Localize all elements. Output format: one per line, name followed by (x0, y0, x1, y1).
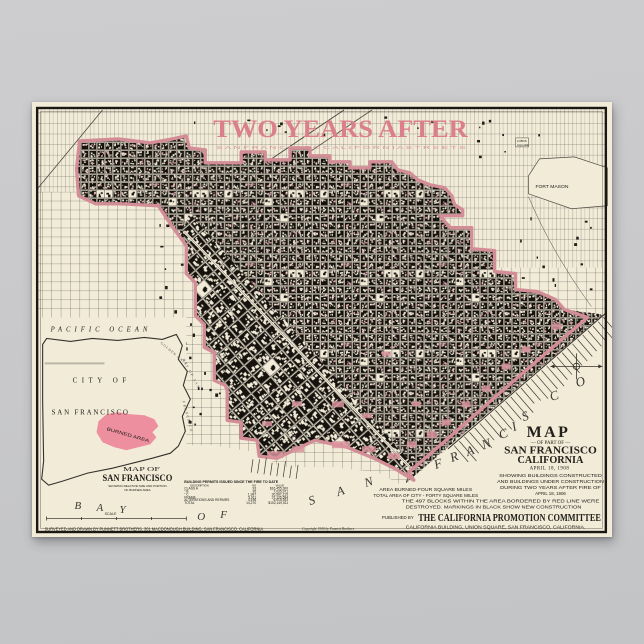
svg-text:SAN FRANCISCO: SAN FRANCISCO (52, 408, 130, 416)
svg-text:CALIFORNIA BUILDING, UNION SQU: CALIFORNIA BUILDING, UNION SQUARE, SAN F… (406, 525, 586, 530)
svg-text:TWO YEARS AFTER: TWO YEARS AFTER (213, 116, 468, 143)
svg-text:SURVEYED AND DRAWN BY PUNNETT: SURVEYED AND DRAWN BY PUNNETT BROTHERS. … (45, 527, 264, 532)
svg-text:$102,149,511: $102,149,511 (268, 501, 288, 505)
svg-text:A: A (96, 502, 104, 514)
svg-text:AREA BURNED-FOUR SQUARE MILES: AREA BURNED-FOUR SQUARE MILES (379, 487, 472, 492)
svg-text:THE 497 BLOCKS WITHIN THE ARE: THE 497 BLOCKS WITHIN THE AREA BORDERED … (402, 499, 600, 504)
svg-text:OF BURNED AREA: OF BURNED AREA (124, 488, 150, 492)
svg-text:BUILDING PERMITS ISSUED SINCE: BUILDING PERMITS ISSUED SINCE THE FIRE T… (184, 480, 279, 484)
svg-text:SQUARE: SQUARE (517, 143, 529, 147)
svg-text:B: B (75, 500, 82, 512)
svg-text:THE CALIFORNIA PROMOTION COMMI: THE CALIFORNIA PROMOTION COMMITTEE (418, 512, 601, 524)
svg-text:APRIL 18, 1906: APRIL 18, 1906 (535, 491, 566, 496)
svg-text:Copyright 1908 by Punnett Br: Copyright 1908 by Punnett Brothers (302, 527, 355, 531)
svg-text:SHOWING BUILDINGS CONSTRUCTED: SHOWING BUILDINGS CONSTRUCTED (499, 473, 602, 478)
svg-text:AND BUILDINGS UNDER CONSTRUCTI: AND BUILDINGS UNDER CONSTRUCTION (497, 479, 604, 484)
svg-text:FORT MASON: FORT MASON (536, 184, 569, 190)
svg-text:MAP OF: MAP OF (123, 466, 161, 473)
svg-text:F: F (219, 509, 227, 521)
svg-text:TOTAL AREA OF CITY - FORTY SQU: TOTAL AREA OF CITY - FORTY SQUARE MILES (373, 493, 478, 498)
svg-text:SCALE: SCALE (105, 512, 117, 516)
svg-text:CALIFORNIA: CALIFORNIA (518, 455, 584, 466)
svg-text:PUBLISHED BY: PUBLISHED BY (382, 515, 414, 520)
svg-text:S A N F R A N C I S C O C A: S A N F R A N C I S C O C A L I F O R N … (216, 145, 466, 150)
svg-text:DURING TWO YEARS AFTER FIRE OF: DURING TWO YEARS AFTER FIRE OF (500, 485, 601, 490)
svg-text:APRIL 18, 1908: APRIL 18, 1908 (530, 467, 570, 472)
svg-text:MAP: MAP (527, 424, 571, 441)
svg-text:CITY OF: CITY OF (73, 376, 131, 384)
svg-text:PACIFIC OCEAN: PACIFIC OCEAN (50, 326, 152, 333)
svg-text:O: O (197, 511, 205, 523)
svg-text:14,270: 14,270 (246, 501, 256, 505)
svg-text:SAN FRANCISCO: SAN FRANCISCO (103, 473, 173, 483)
svg-text:TOTAL: TOTAL (184, 501, 194, 505)
svg-text:DESTROYED. MARKINGS IN BLAC: DESTROYED. MARKINGS IN BLACK SHOW NEW CO… (406, 505, 582, 510)
